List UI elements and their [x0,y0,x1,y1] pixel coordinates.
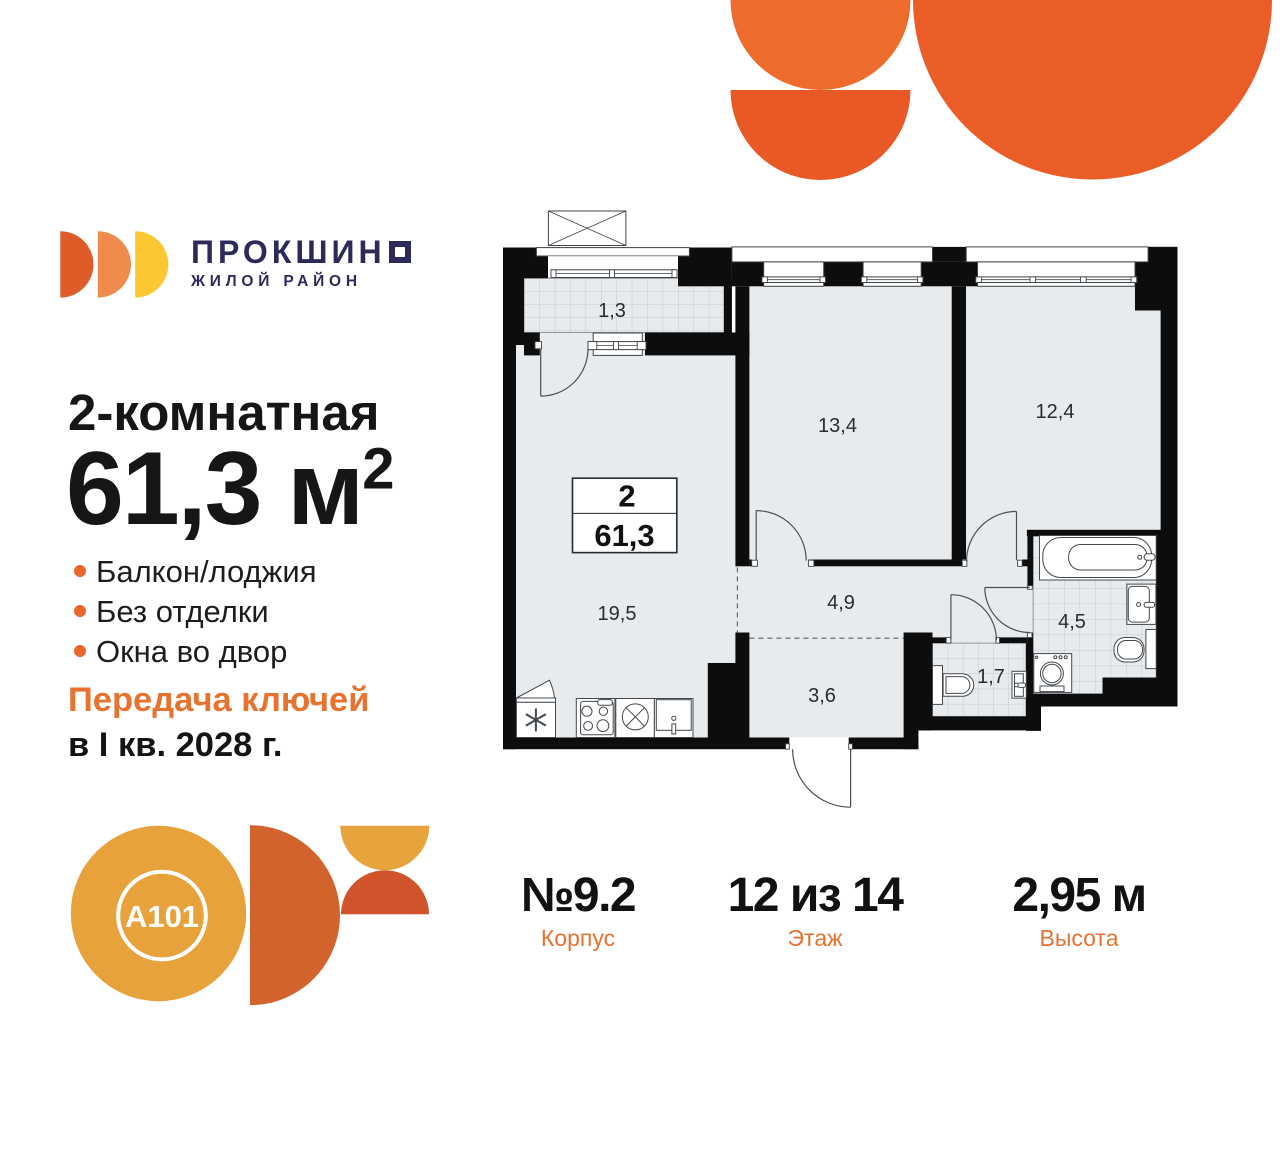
svg-text:4,5: 4,5 [1058,611,1086,633]
svg-text:13,4: 13,4 [818,415,857,437]
svg-text:1,3: 1,3 [598,300,626,322]
svg-text:A101: A101 [125,899,199,934]
svg-text:19,5: 19,5 [598,603,637,625]
svg-text:2: 2 [618,479,635,514]
svg-text:4,9: 4,9 [827,592,855,614]
svg-text:12,4: 12,4 [1036,401,1075,423]
svg-text:3,6: 3,6 [808,685,836,707]
svg-text:61,3: 61,3 [594,518,654,553]
svg-text:1,7: 1,7 [977,666,1005,688]
